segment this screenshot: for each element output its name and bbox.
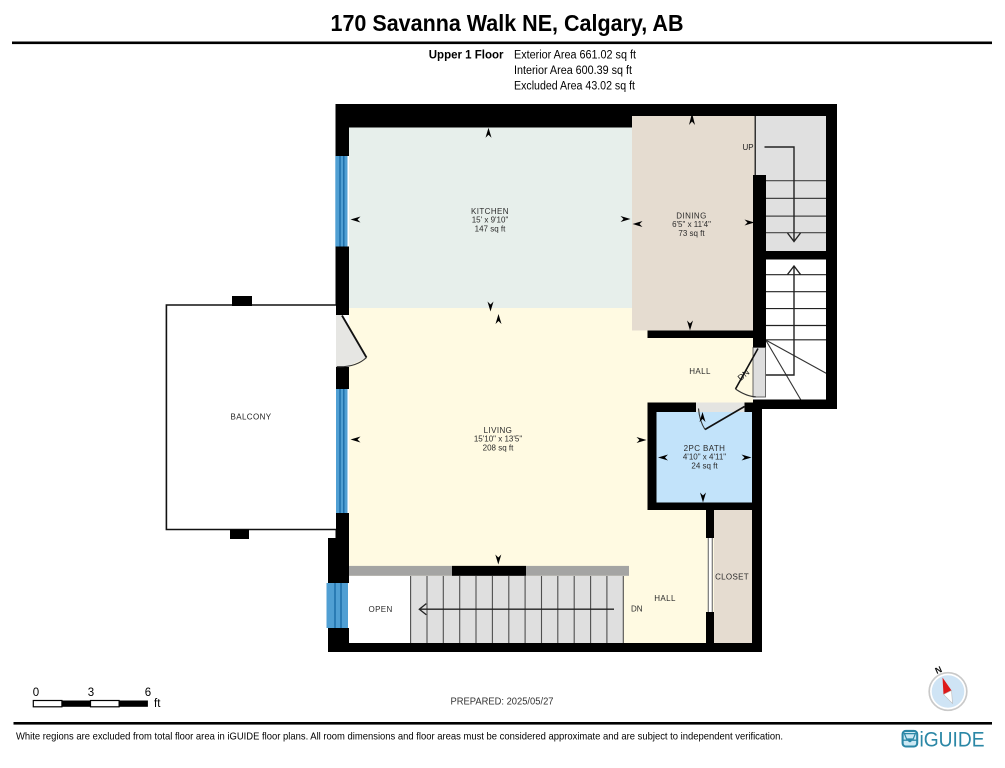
svg-text:15'10" x 13'5": 15'10" x 13'5" [474,435,522,444]
svg-text:2PC BATH: 2PC BATH [684,444,726,453]
svg-text:PREPARED: 2025/05/27: PREPARED: 2025/05/27 [451,697,554,708]
svg-text:147 sq ft: 147 sq ft [475,224,506,233]
svg-text:73 sq ft: 73 sq ft [678,229,705,238]
svg-text:3: 3 [88,687,94,699]
svg-text:OPEN: OPEN [368,605,392,614]
svg-text:170 Savanna Walk NE, Calgary,: 170 Savanna Walk NE, Calgary, AB [331,10,684,36]
svg-text:Exterior Area 661.02 sq ft: Exterior Area 661.02 sq ft [514,50,637,62]
svg-text:LIVING: LIVING [484,426,513,435]
svg-text:KITCHEN: KITCHEN [471,207,509,216]
svg-text:0: 0 [33,687,39,699]
svg-text:ft: ft [154,698,161,710]
svg-text:DINING: DINING [676,211,706,220]
svg-text:HALL: HALL [689,367,711,376]
svg-text:iGUIDE: iGUIDE [920,728,985,752]
svg-text:208 sq ft: 208 sq ft [483,443,514,452]
svg-text:Upper 1 Floor: Upper 1 Floor [429,50,504,62]
svg-text:UP: UP [742,143,753,152]
svg-text:4'10" x 4'11": 4'10" x 4'11" [683,453,726,462]
svg-text:6: 6 [145,687,151,699]
svg-text:DN: DN [631,605,643,614]
svg-text:15' x 9'10": 15' x 9'10" [472,216,509,225]
svg-text:Excluded Area 43.02 sq ft: Excluded Area 43.02 sq ft [514,81,636,93]
svg-text:6'5" x 11'4": 6'5" x 11'4" [672,220,711,229]
svg-text:HALL: HALL [654,594,676,603]
svg-text:24 sq ft: 24 sq ft [691,461,718,470]
svg-text:White regions are excluded fro: White regions are excluded from total fl… [16,731,783,743]
svg-text:Interior Area 600.39 sq ft: Interior Area 600.39 sq ft [514,65,633,77]
svg-text:CLOSET: CLOSET [715,573,749,582]
svg-text:BALCONY: BALCONY [230,413,271,422]
